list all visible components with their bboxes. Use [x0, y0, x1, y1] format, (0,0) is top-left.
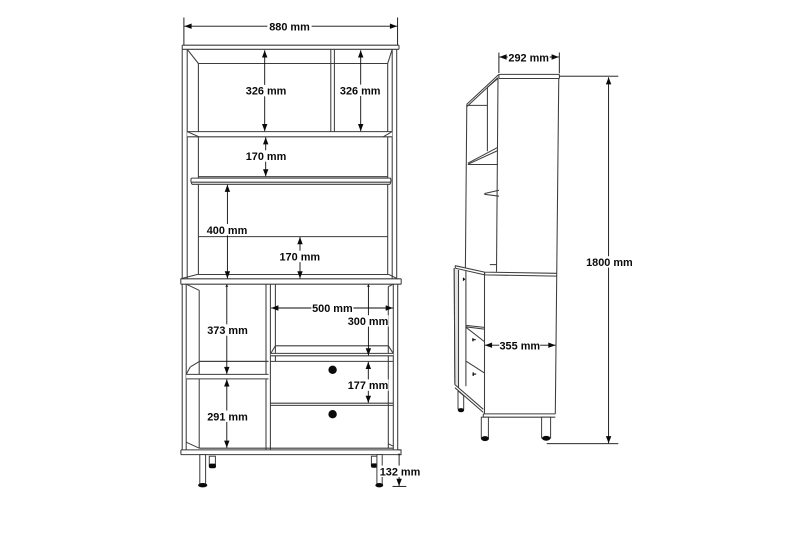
svg-text:326 mm: 326 mm: [340, 85, 381, 97]
svg-text:400 mm: 400 mm: [207, 225, 248, 237]
svg-text:291 mm: 291 mm: [207, 411, 248, 423]
svg-text:1800 mm: 1800 mm: [586, 257, 633, 269]
svg-text:292 mm: 292 mm: [508, 52, 549, 64]
svg-text:170 mm: 170 mm: [280, 252, 321, 264]
svg-text:300 mm: 300 mm: [348, 316, 389, 328]
svg-text:373 mm: 373 mm: [207, 325, 248, 337]
svg-text:880 mm: 880 mm: [269, 21, 310, 33]
svg-text:170 mm: 170 mm: [246, 151, 287, 163]
svg-text:500 mm: 500 mm: [312, 303, 353, 315]
svg-text:132 mm: 132 mm: [380, 466, 421, 478]
svg-text:355 mm: 355 mm: [500, 340, 541, 352]
svg-text:326 mm: 326 mm: [246, 86, 287, 98]
svg-text:177 mm: 177 mm: [348, 380, 389, 392]
